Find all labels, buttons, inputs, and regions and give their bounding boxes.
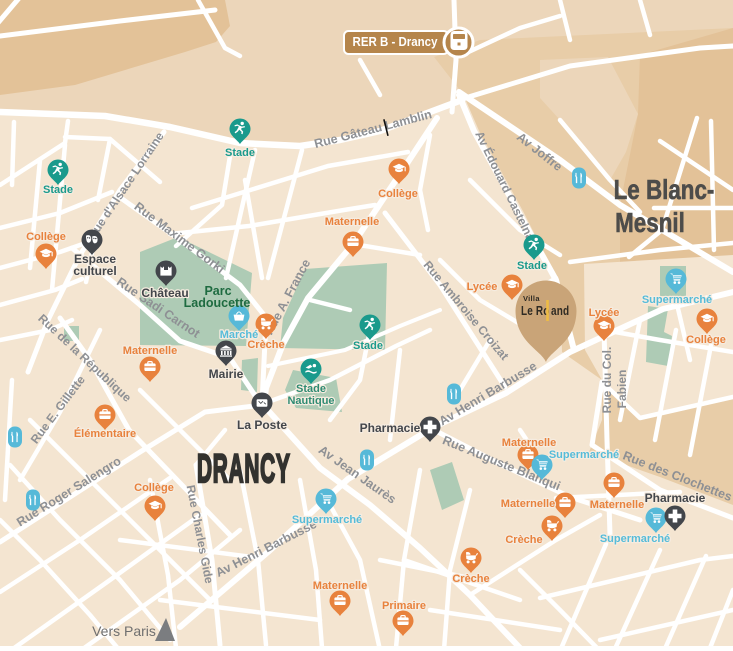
svg-text:Stade: Stade: [353, 340, 383, 352]
svg-text:Collège: Collège: [378, 188, 418, 200]
svg-text:Collège: Collège: [686, 334, 726, 346]
svg-text:Élémentaire: Élémentaire: [74, 427, 136, 440]
svg-text:La Poste: La Poste: [237, 418, 287, 432]
svg-text:Fabien: Fabien: [615, 370, 629, 409]
svg-text:Maternelle: Maternelle: [123, 345, 177, 357]
svg-text:Crèche: Crèche: [505, 534, 542, 546]
svg-text:Supermarché: Supermarché: [642, 294, 712, 306]
svg-text:Collège: Collège: [134, 482, 174, 494]
svg-text:Mairie: Mairie: [209, 367, 244, 381]
svg-text:Supermarché: Supermarché: [292, 514, 362, 526]
svg-text:Maternelle: Maternelle: [325, 216, 379, 228]
svg-text:RER B - Drancy: RER B - Drancy: [353, 35, 438, 50]
svg-text:Maternelle: Maternelle: [501, 498, 555, 510]
svg-text:and: and: [551, 305, 569, 318]
svg-text:Rue du Col.: Rue du Col.: [600, 347, 614, 414]
svg-text:Le Blanc-: Le Blanc-: [614, 175, 715, 206]
svg-text:Maternelle: Maternelle: [313, 580, 367, 592]
svg-text:Stade: Stade: [225, 147, 255, 159]
svg-text:Pharmacie: Pharmacie: [645, 491, 706, 505]
svg-text:DRANCY: DRANCY: [197, 446, 291, 491]
svg-text:Stade: Stade: [43, 184, 73, 196]
svg-text:Pharmacie: Pharmacie: [360, 421, 421, 435]
svg-text:Maternelle: Maternelle: [590, 499, 644, 511]
svg-text:Lycée: Lycée: [467, 281, 498, 293]
svg-text:Lycée: Lycée: [589, 307, 620, 319]
svg-text:Mesnil: Mesnil: [615, 208, 685, 239]
svg-text:Collège: Collège: [26, 231, 66, 243]
svg-text:Crèche: Crèche: [452, 573, 489, 585]
svg-text:Primaire: Primaire: [382, 600, 426, 612]
svg-text:Le Ro: Le Ro: [521, 305, 550, 318]
svg-text:Supermarché: Supermarché: [600, 533, 670, 545]
svg-text:Vers Paris: Vers Paris: [92, 623, 156, 639]
svg-text:Nautique: Nautique: [287, 395, 334, 407]
svg-text:culturel: culturel: [73, 264, 116, 278]
svg-text:Château: Château: [141, 286, 188, 300]
svg-text:Stade: Stade: [517, 260, 547, 272]
svg-text:Supermarché: Supermarché: [549, 449, 619, 461]
svg-text:Maternelle: Maternelle: [502, 437, 556, 449]
svg-text:Ladoucette: Ladoucette: [184, 296, 251, 310]
svg-text:Marché: Marché: [220, 329, 259, 341]
svg-text:Villa: Villa: [523, 294, 540, 303]
svg-text:Stade: Stade: [296, 383, 326, 395]
